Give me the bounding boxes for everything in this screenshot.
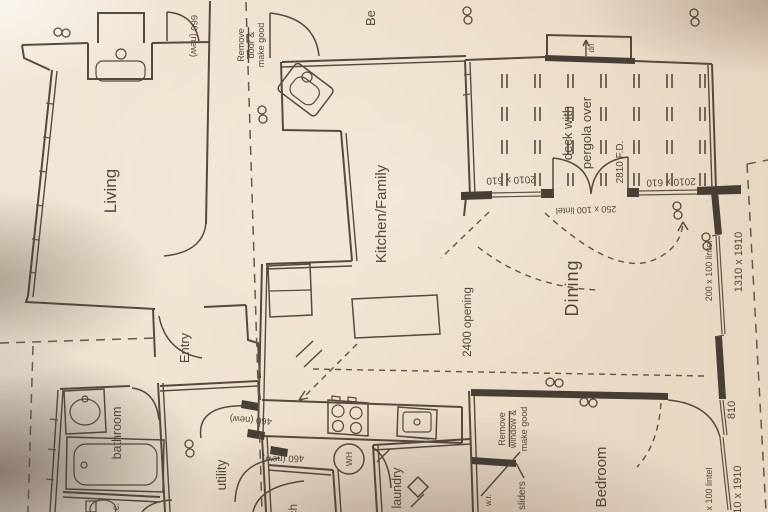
floor-plan-photo: Living Kitchen/Family Dining deck with p… xyxy=(0,0,768,512)
corner-sink-bowl xyxy=(287,74,323,108)
note-remove-door-3: make good xyxy=(256,23,266,68)
outlet-circle xyxy=(62,29,70,37)
room-label-partial: Be xyxy=(363,10,378,26)
washing-machine-symbol xyxy=(408,477,428,497)
room-label-entry: Entry xyxy=(177,332,192,363)
outlet-circle xyxy=(555,379,563,387)
room-label-porch: porch xyxy=(286,504,300,512)
note-remove-window-3: make good xyxy=(519,407,529,452)
outlet-circle xyxy=(185,440,193,448)
dim-660-new: 660 (new) xyxy=(188,15,199,57)
outlet-circle xyxy=(674,211,682,219)
room-label-bathroom: bathroom xyxy=(110,407,124,460)
room-label-deck-line2: pergola over xyxy=(579,96,594,169)
corner-sink-bench xyxy=(277,62,335,117)
outlet-circle xyxy=(690,9,698,17)
outlet-circle xyxy=(463,7,471,15)
outlet-circle xyxy=(546,378,554,386)
note-remove-window-2: window & xyxy=(508,410,518,450)
room-label-deck-line1: deck with xyxy=(560,106,575,160)
outlet-circle xyxy=(691,18,699,26)
note-sliders: sliders xyxy=(517,481,528,510)
note-remove-window-1: Remove xyxy=(497,412,507,446)
dim-deck-lintel: 250 x 100 lintel xyxy=(556,204,617,216)
water-heater-label: WH xyxy=(344,452,354,466)
dim-deck-window-right: 2010 x 610 xyxy=(646,175,696,188)
outlet-circle xyxy=(54,28,62,36)
burner xyxy=(333,421,344,432)
burner xyxy=(350,407,362,419)
corner-sink xyxy=(277,62,335,117)
sink-drain xyxy=(414,419,420,425)
outlet-circle xyxy=(589,399,597,407)
stair-label: dn xyxy=(587,44,596,53)
room-label-dining: Dining xyxy=(562,259,582,316)
dim-dining-window: 1310 x 1910 xyxy=(733,232,745,293)
outlet-circle xyxy=(580,398,588,406)
tall-cabinet xyxy=(268,264,312,317)
fireplace xyxy=(96,49,145,81)
note-remove-door-1: Remove xyxy=(236,28,246,62)
dim-dining-lintel: 200 x 100 lintel xyxy=(704,241,714,302)
kitchen-island xyxy=(352,295,440,338)
room-label-living: Living xyxy=(101,169,120,213)
vanity-basin xyxy=(64,389,106,434)
room-label-wc: w.c. xyxy=(111,503,122,512)
burner xyxy=(332,405,344,417)
dim-bedroom-door: 810 xyxy=(726,401,738,419)
dim-460-new-b: 460 (new) xyxy=(262,452,305,464)
room-label-bedroom: Bedroom xyxy=(593,447,610,508)
floor-plan-drawing: Living Kitchen/Family Dining deck with p… xyxy=(0,0,768,512)
dim-2400-opening: 2400 opening xyxy=(462,287,474,357)
dim-460-new-a: 460 (new) xyxy=(229,413,272,427)
dim-deck-window-left: 2010 x 610 xyxy=(486,173,536,186)
note-remove-door-2: door & xyxy=(246,32,256,59)
dim-french-doors: 2810 F.D. xyxy=(615,141,626,184)
outlet-circle xyxy=(673,202,681,210)
fireplace-flue xyxy=(116,49,126,59)
dim-bedroom-lintel: 200 x 100 lintel xyxy=(704,467,714,512)
room-label-utility: utility xyxy=(214,459,229,490)
outlet-circle xyxy=(259,115,267,123)
note-wr: w.r. xyxy=(484,494,493,507)
outlet-circle xyxy=(464,16,472,24)
room-label-laundry: laundry xyxy=(390,467,404,509)
dim-bedroom-window: 1310 x 1910 xyxy=(732,465,744,512)
burner xyxy=(351,423,362,434)
tub-drain xyxy=(81,462,87,468)
corner-sink-tap xyxy=(300,70,314,84)
room-label-kitchen-family: Kitchen/Family xyxy=(373,164,390,263)
outlet-circle xyxy=(702,233,710,241)
kitchen-sink xyxy=(397,407,437,439)
outlet-circle xyxy=(258,106,266,114)
outlet-circle xyxy=(186,449,194,457)
